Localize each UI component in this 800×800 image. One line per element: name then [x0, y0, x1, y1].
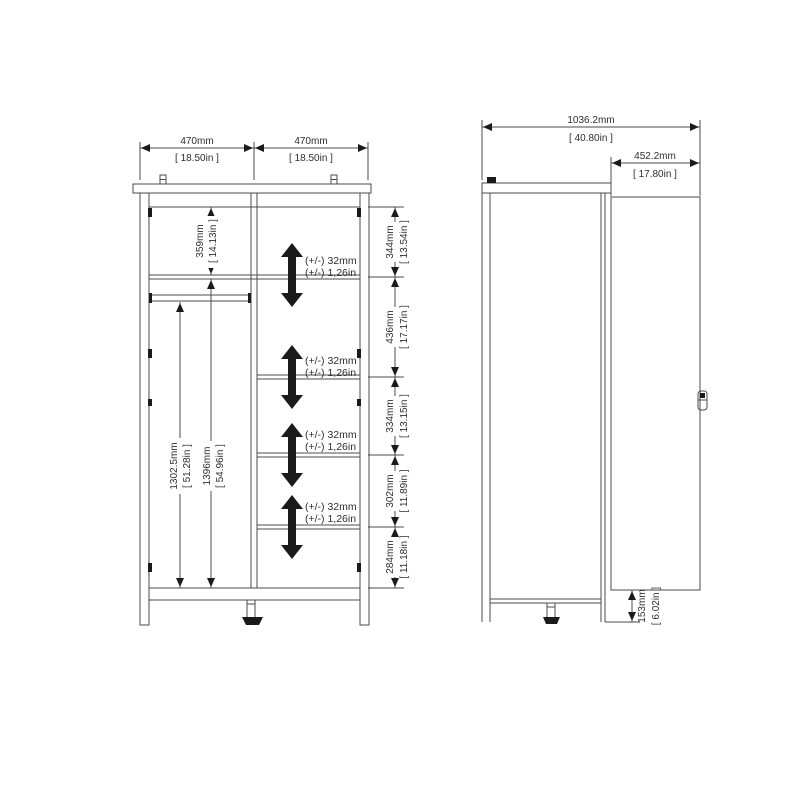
dim-left-door-width-mm: 470mm — [180, 136, 213, 147]
dim-section5-mm: 284mm — [385, 540, 396, 573]
dim-section1-mm: 344mm — [385, 225, 396, 258]
adjust-label-in: (+/-) 1,26in — [305, 267, 356, 279]
adjust-label-mm: (+/-) 32mm — [305, 355, 357, 367]
dim-top-shelf-mm: 359mm — [195, 224, 206, 257]
open-door-panel — [611, 197, 700, 590]
adjust-label-mm: (+/-) 32mm — [305, 429, 357, 441]
dim-base-height-mm: 153mm — [637, 589, 648, 622]
adjust-label-in: (+/-) 1,26in — [305, 367, 356, 379]
dim-left-door-width-in: [ 18.50in ] — [175, 153, 219, 164]
adjust-label-mm: (+/-) 32mm — [305, 255, 357, 267]
dim-rod-to-base-mm: 1302.5mm — [169, 442, 180, 489]
dim-right-door-width-in: [ 18.50in ] — [289, 153, 333, 164]
dim-total-depth-mm: 1036.2mm — [567, 115, 614, 126]
top-fitting — [487, 177, 496, 183]
dim-shelf-to-base-mm: 1396mm — [202, 447, 213, 486]
dim-rod-to-base-in: [ 51.28in ] — [182, 444, 193, 488]
dim-section4-in: [ 11.89in ] — [399, 469, 410, 512]
side-top-panel — [482, 183, 611, 193]
dim-section5-in: [ 11.18in ] — [399, 535, 410, 578]
dim-section4-mm: 302mm — [385, 474, 396, 507]
adjust-label-in: (+/-) 1,26in — [305, 441, 356, 453]
dim-section2-in: [ 17.17in ] — [399, 305, 410, 349]
top-panel — [133, 184, 371, 193]
left-side-panel — [140, 193, 149, 625]
dim-section1-in: [ 13.54in ] — [399, 220, 410, 264]
technical-drawing-canvas: 470mm [ 18.50in ] 470mm [ 18.50in ] — [0, 0, 800, 800]
dim-top-shelf-in: [ 14.13in ] — [208, 219, 219, 263]
adjust-label-in: (+/-) 1,26in — [305, 513, 356, 525]
dim-total-depth-in: [ 40.80in ] — [569, 133, 613, 144]
right-side-panel — [360, 193, 369, 625]
dim-door-panel-in: [ 17.80in ] — [633, 169, 677, 180]
dim-section3-in: [ 13.15in ] — [399, 394, 410, 438]
dim-base-height-in: [ 6.02in ] — [651, 587, 662, 626]
dim-section2-mm: 436mm — [385, 310, 396, 343]
dim-right-door-width-mm: 470mm — [294, 136, 327, 147]
dim-door-panel-mm: 452.2mm — [634, 151, 676, 162]
adjust-label-mm: (+/-) 32mm — [305, 501, 357, 513]
dim-section3-mm: 334mm — [385, 399, 396, 432]
center-divider — [251, 193, 257, 588]
dim-shelf-to-base-in: [ 54.96in ] — [215, 444, 226, 488]
